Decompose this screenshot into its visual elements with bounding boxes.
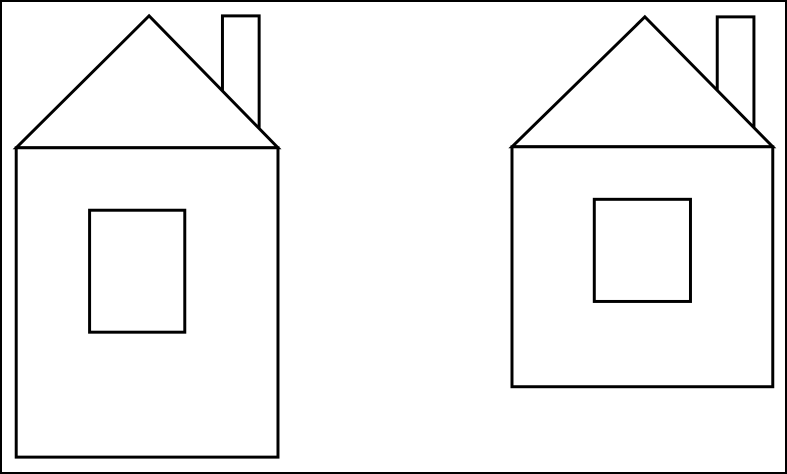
houses-line-drawing [2, 2, 785, 472]
drawing-canvas [0, 0, 787, 474]
right-house-window [594, 199, 690, 301]
left-house-window [90, 210, 185, 332]
